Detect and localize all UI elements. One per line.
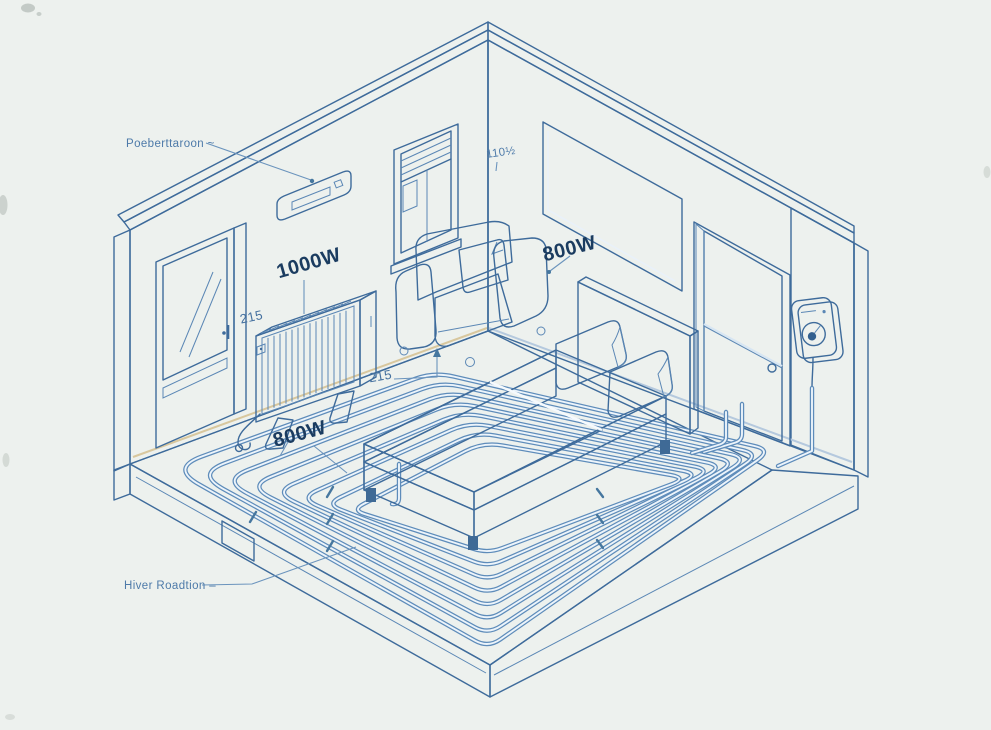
- label-heater-location: Poeberttaroon ~: [126, 138, 215, 150]
- bed-foot: [366, 488, 376, 502]
- background: [0, 0, 991, 730]
- label-heater-position: Hiver Roadtion –: [124, 580, 216, 592]
- bed-foot: [660, 440, 670, 454]
- bed-foot: [468, 536, 478, 550]
- room-diagram: Poeberttaroon ~ 1000W 215 110½ 800W 215 …: [0, 0, 991, 730]
- diagram-canvas: Poeberttaroon ~ 1000W 215 110½ 800W 215 …: [0, 0, 991, 730]
- door-handle-dot: [222, 331, 226, 335]
